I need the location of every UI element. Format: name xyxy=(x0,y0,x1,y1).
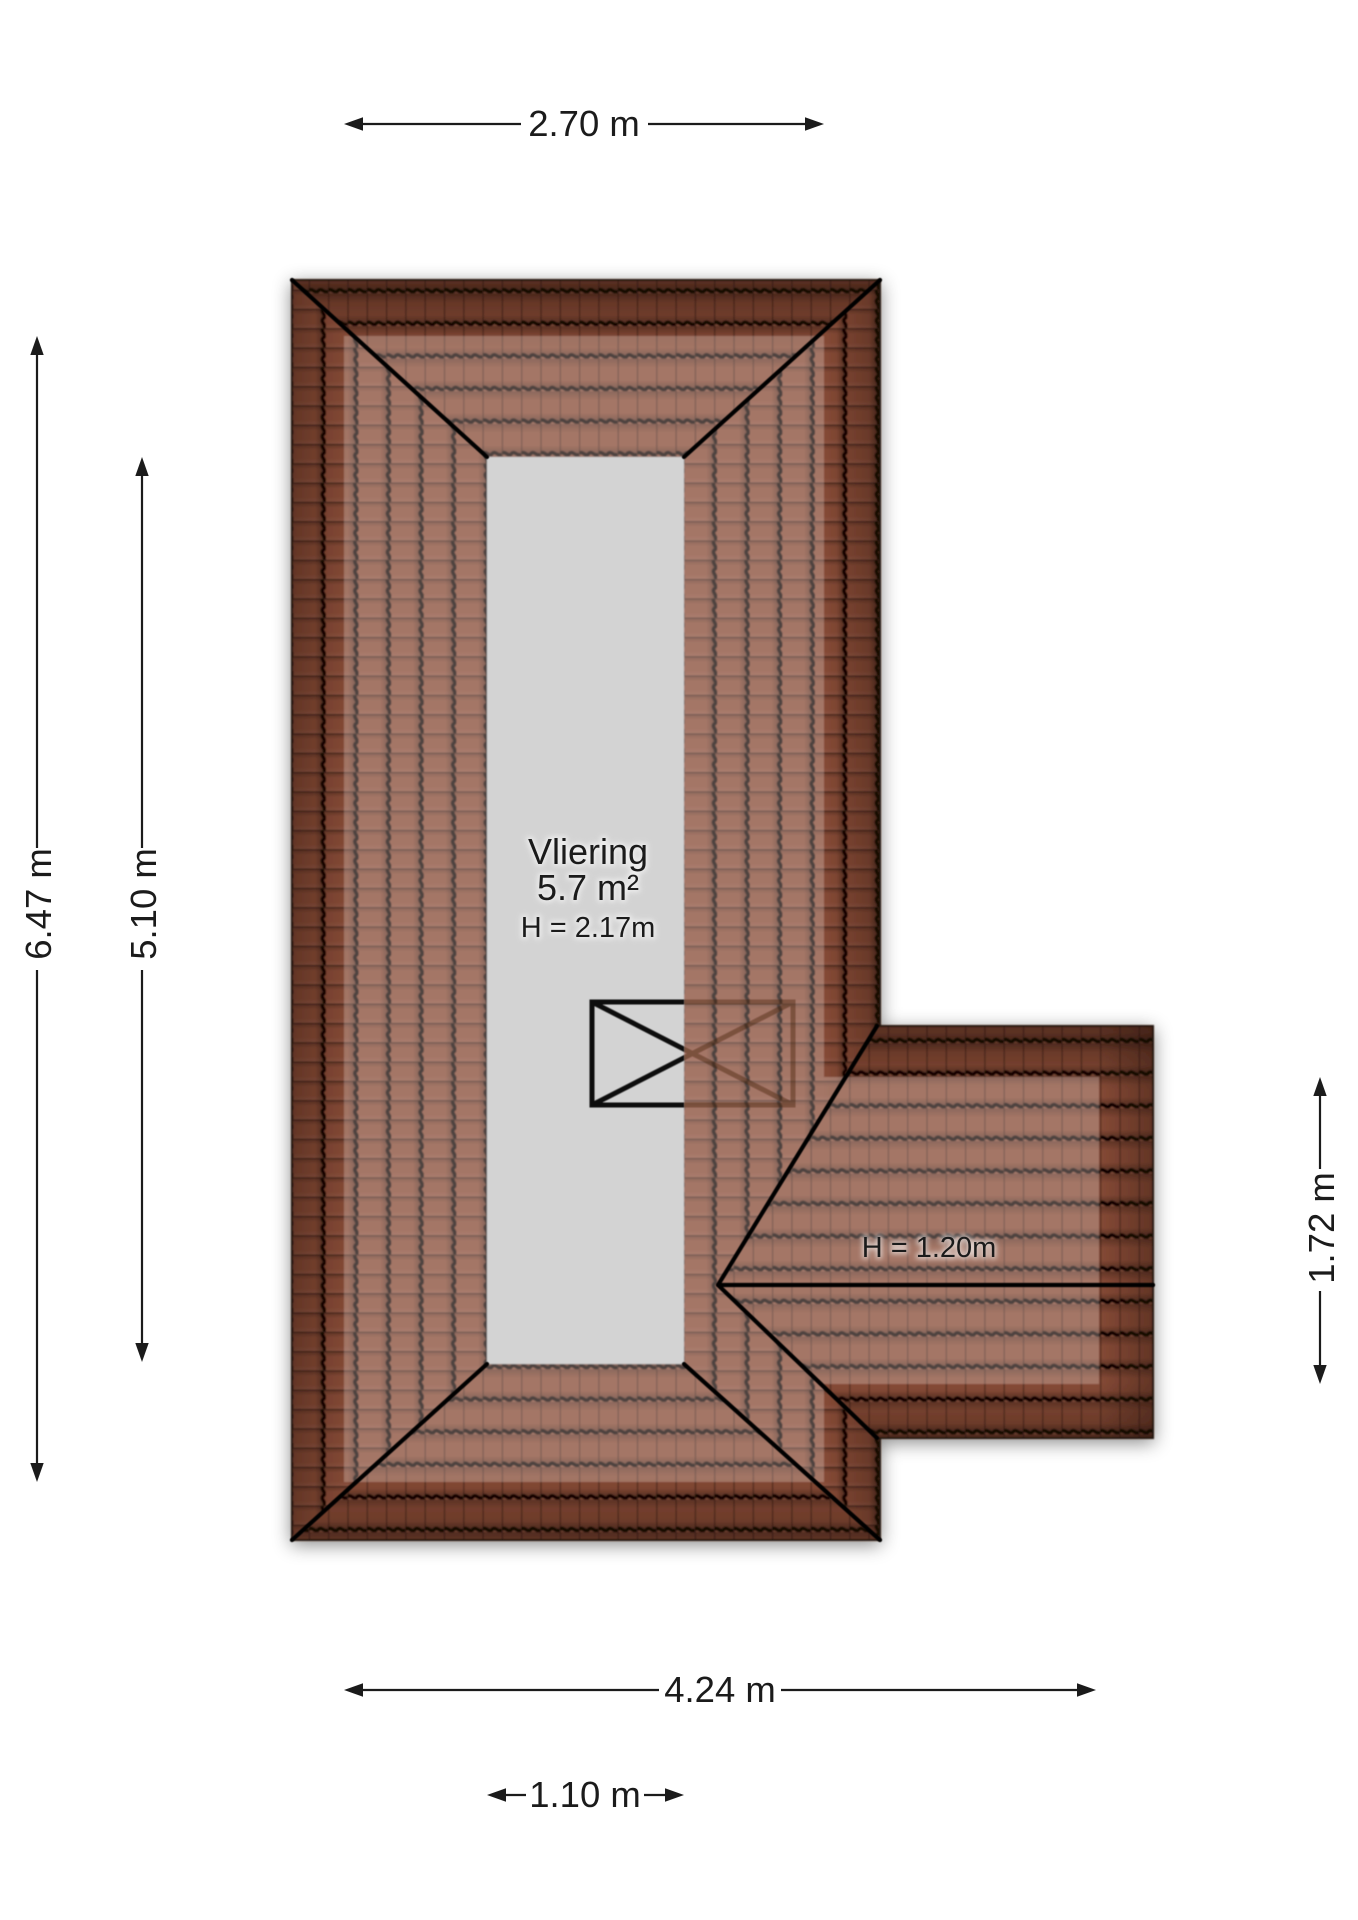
svg-text:Vliering: Vliering xyxy=(528,831,648,872)
svg-text:4.24 m: 4.24 m xyxy=(664,1669,776,1710)
svg-text:H = 2.17m: H = 2.17m xyxy=(521,912,656,944)
svg-text:5.7 m²: 5.7 m² xyxy=(537,867,639,908)
svg-text:1.10 m: 1.10 m xyxy=(529,1774,641,1815)
svg-text:1.72 m: 1.72 m xyxy=(1301,1172,1342,1284)
svg-text:6.47 m: 6.47 m xyxy=(18,848,59,960)
svg-text:H = 1.20m: H = 1.20m xyxy=(862,1232,997,1264)
svg-text:5.10 m: 5.10 m xyxy=(123,848,164,960)
svg-text:2.70 m: 2.70 m xyxy=(528,103,640,144)
